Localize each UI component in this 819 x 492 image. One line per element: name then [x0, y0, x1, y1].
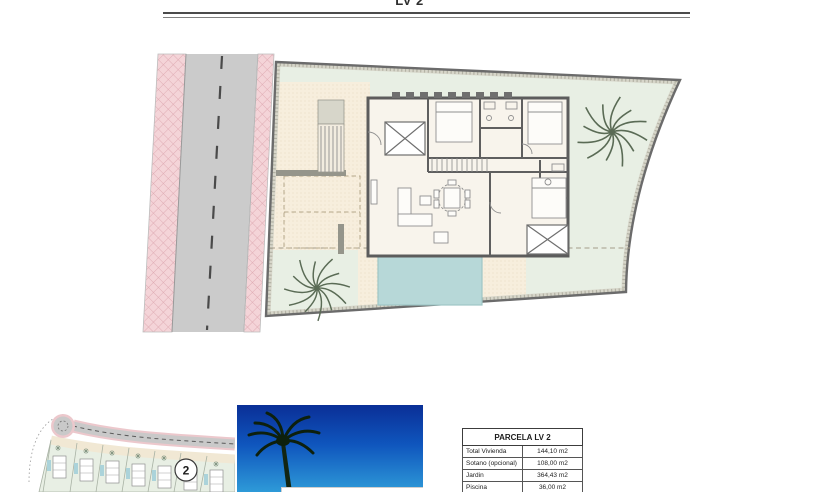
- beach-photo: [237, 405, 423, 492]
- table-row: Piscina 36,00 m2: [463, 482, 583, 492]
- table-row: Jardin 364,43 m2: [463, 470, 583, 482]
- palm-silhouette-icon: [237, 405, 423, 492]
- site-plan: [0, 0, 819, 400]
- swimming-pool: [378, 255, 482, 305]
- row-value: 36,00 m2: [523, 482, 583, 492]
- void-x-box-top: [385, 122, 425, 155]
- mini-site-map: 2: [13, 404, 235, 492]
- table-row: Sotano (opcional) 108,00 m2: [463, 458, 583, 470]
- map-road: [51, 414, 235, 444]
- photo-label-box: [281, 487, 423, 492]
- brochure-page: LV 2: [0, 0, 819, 492]
- row-label: Jardin: [463, 470, 523, 482]
- plot-2-badge: 2: [175, 459, 197, 481]
- row-value: 144,10 m2: [523, 446, 583, 458]
- area-table: PARCELA LV 2 Total Vivienda 144,10 m2 So…: [462, 428, 583, 492]
- row-label: Total Vivienda: [463, 446, 523, 458]
- road: [143, 54, 274, 332]
- wall-stub: [338, 224, 344, 254]
- pergola-trellis: [392, 92, 512, 98]
- row-label: Sotano (opcional): [463, 458, 523, 470]
- void-x-box-bottom: [527, 225, 568, 254]
- area-table-title: PARCELA LV 2: [463, 429, 583, 446]
- plot-2-badge-label: 2: [183, 464, 190, 478]
- table-row: Total Vivienda 144,10 m2: [463, 446, 583, 458]
- road-asphalt: [172, 54, 258, 332]
- row-value: 364,43 m2: [523, 470, 583, 482]
- row-value: 108,00 m2: [523, 458, 583, 470]
- row-label: Piscina: [463, 482, 523, 492]
- entry-steps: [318, 100, 344, 172]
- house-floor-plan: [368, 92, 568, 256]
